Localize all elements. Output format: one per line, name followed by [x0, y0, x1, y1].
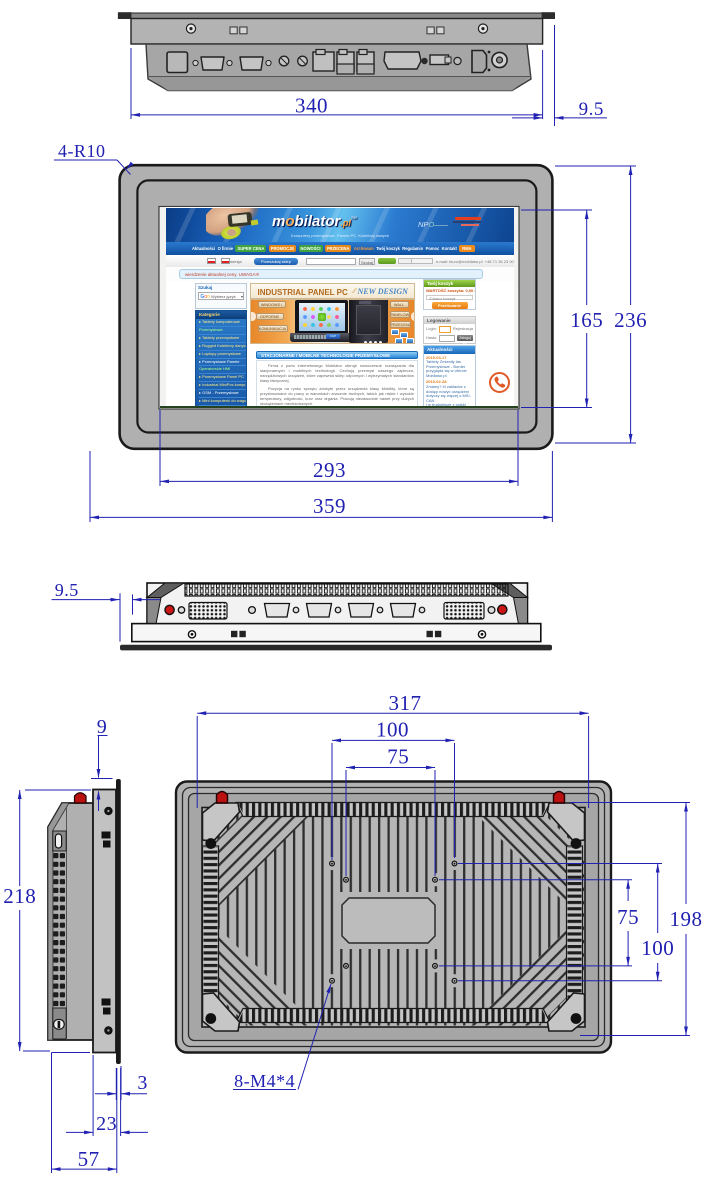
- svg-text:9.5: 9.5: [579, 99, 604, 120]
- svg-text:100: 100: [376, 718, 409, 742]
- svg-text:340: 340: [295, 94, 328, 118]
- svg-text:293: 293: [313, 458, 346, 482]
- svg-text:4-R10: 4-R10: [58, 141, 106, 161]
- svg-text:165: 165: [570, 308, 603, 332]
- svg-text:8-M4*4: 8-M4*4: [234, 1071, 295, 1091]
- svg-text:9: 9: [97, 716, 108, 738]
- svg-text:75: 75: [387, 745, 409, 769]
- svg-text:9.5: 9.5: [55, 580, 79, 600]
- svg-text:57: 57: [78, 1147, 100, 1171]
- svg-text:23: 23: [96, 1113, 117, 1135]
- svg-text:218: 218: [3, 884, 36, 908]
- svg-text:75: 75: [617, 905, 639, 929]
- svg-text:100: 100: [641, 936, 674, 960]
- svg-text:3: 3: [137, 1072, 148, 1094]
- svg-text:359: 359: [313, 494, 346, 518]
- svg-text:236: 236: [614, 308, 647, 332]
- svg-text:317: 317: [389, 691, 422, 715]
- svg-text:198: 198: [670, 907, 703, 931]
